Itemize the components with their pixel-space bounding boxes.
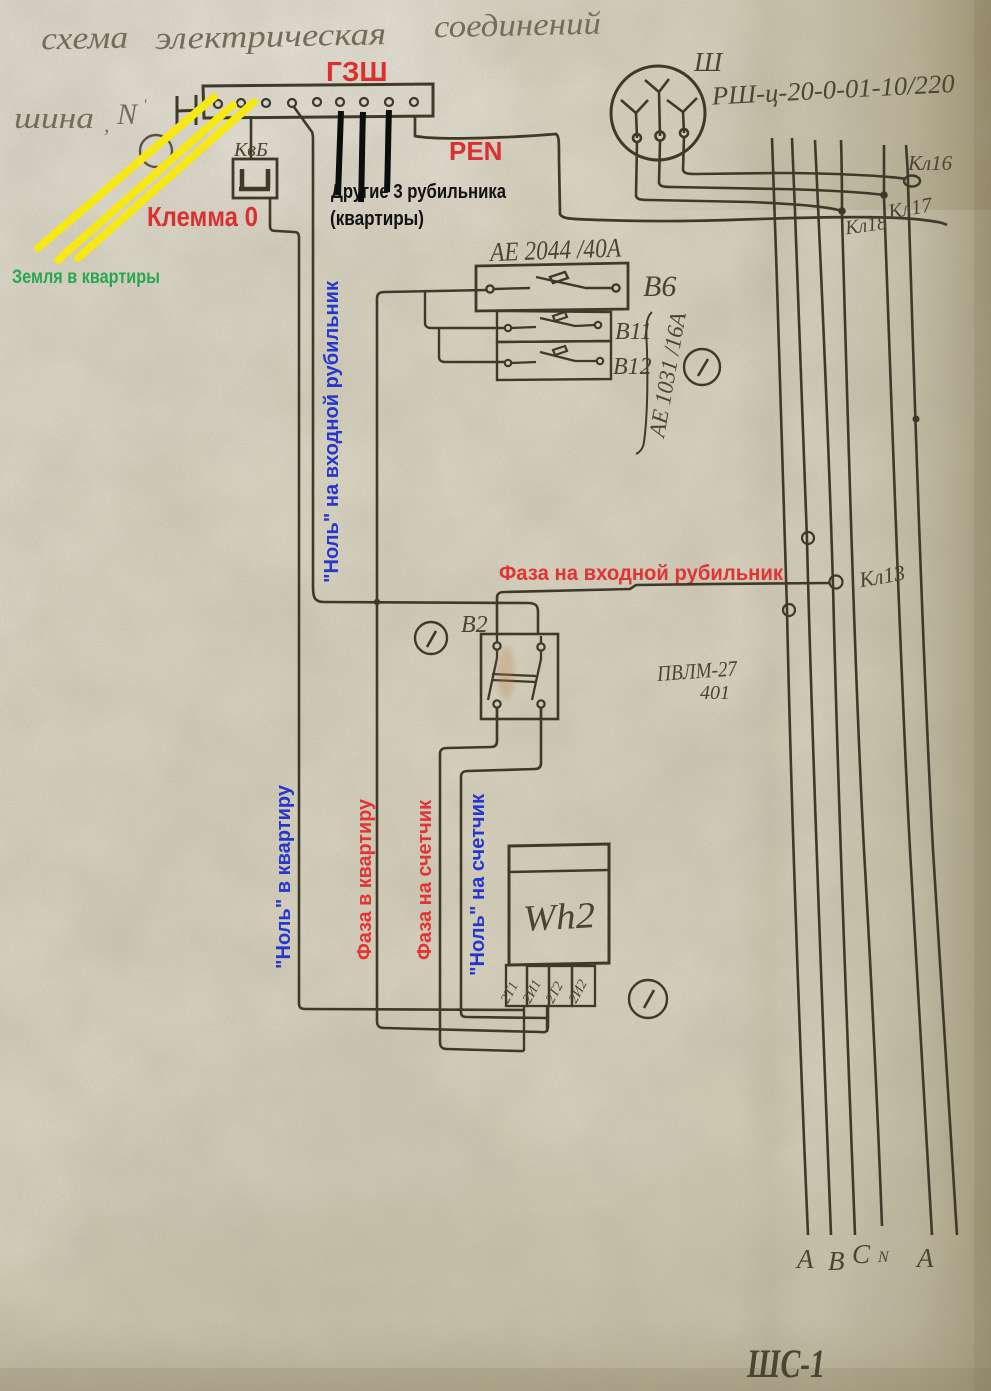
svg-text:"Ноль" в квартиру: "Ноль" в квартиру [273, 784, 295, 969]
svg-text:': ' [143, 97, 147, 114]
svg-text:А: А [915, 1243, 934, 1273]
svg-text:ГЗШ: ГЗШ [326, 56, 388, 87]
svg-text:электрическая: электрическая [155, 15, 387, 56]
svg-text:Wh2: Wh2 [522, 895, 596, 940]
svg-text:401: 401 [700, 682, 730, 704]
svg-text:(квартиры): (квартиры) [330, 208, 424, 230]
svg-text:В: В [828, 1246, 845, 1276]
svg-text:PEN: PEN [449, 136, 502, 166]
svg-text:Клемма 0: Клемма 0 [147, 201, 258, 232]
svg-text:схема: схема [41, 19, 129, 57]
svg-text:соединений: соединений [434, 5, 602, 44]
svg-text:ШС-1: ШС-1 [746, 1341, 825, 1386]
svg-text:Фаза в квартиру: Фаза в квартиру [354, 798, 376, 960]
svg-text:Ш: Ш [693, 47, 724, 77]
svg-text:А: А [795, 1244, 814, 1274]
svg-text:Фаза на счетчик: Фаза на счетчик [414, 799, 436, 960]
svg-text:АЕ 2044 /40А: АЕ 2044 /40А [488, 233, 622, 268]
svg-text:Фаза на входной рубильник: Фаза на входной рубильник [499, 562, 783, 585]
svg-text:N: N [116, 98, 139, 131]
svg-text:шина: шина [14, 100, 94, 135]
svg-text:КвБ: КвБ [233, 139, 268, 161]
svg-text:"Ноль" на входной рубильник: "Ноль" на входной рубильник [321, 280, 343, 583]
svg-text:Земля в квартиры: Земля в квартиры [12, 267, 160, 288]
svg-text:Другие 3 рубильника: Другие 3 рубильника [331, 181, 507, 203]
svg-text:"Ноль" на счетчик: "Ноль" на счетчик [467, 793, 489, 976]
svg-text:С: С [852, 1239, 871, 1269]
svg-text:В12: В12 [613, 354, 652, 380]
svg-text:Кл16: Кл16 [907, 151, 953, 175]
svg-text:,: , [104, 112, 110, 137]
svg-text:В6: В6 [643, 270, 676, 303]
svg-text:N: N [877, 1249, 890, 1266]
